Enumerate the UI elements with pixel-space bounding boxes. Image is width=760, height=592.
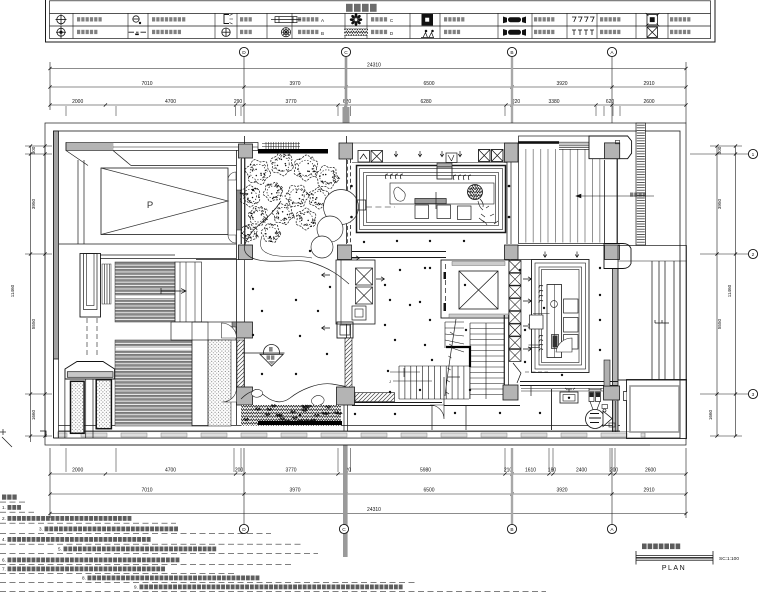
svg-text:3970: 3970 (289, 81, 300, 87)
svg-text:D: D (242, 50, 246, 56)
svg-text:3770: 3770 (285, 468, 296, 474)
svg-text:2910: 2910 (643, 81, 654, 87)
svg-text:6500: 6500 (423, 488, 434, 494)
svg-text:3950: 3950 (31, 198, 36, 209)
svg-text:8.: 8. (82, 576, 86, 581)
svg-text:5980: 5980 (420, 468, 431, 474)
svg-text:1610: 1610 (525, 468, 536, 474)
svg-text:3950: 3950 (717, 198, 722, 209)
svg-text:1660: 1660 (708, 409, 713, 420)
svg-text:200: 200 (235, 468, 244, 474)
svg-text:1: 1 (752, 152, 755, 158)
svg-text:5.: 5. (58, 547, 62, 552)
svg-text:2000: 2000 (72, 468, 83, 474)
svg-text:C: C (344, 50, 348, 56)
svg-text:1660: 1660 (31, 409, 36, 420)
svg-text:B: B (510, 50, 513, 56)
svg-text:3.: 3. (39, 527, 43, 532)
svg-text:C: C (342, 527, 346, 533)
svg-text:6500: 6500 (423, 81, 434, 87)
svg-text:4700: 4700 (165, 468, 176, 474)
svg-text:4700: 4700 (165, 99, 176, 105)
svg-text:7.: 7. (2, 567, 6, 572)
svg-text:24310: 24310 (367, 507, 381, 513)
svg-text:J: J (389, 379, 391, 384)
svg-text:7010: 7010 (141, 81, 152, 87)
svg-text:2000: 2000 (72, 99, 83, 105)
svg-text:3380: 3380 (548, 99, 559, 105)
svg-text:24310: 24310 (367, 63, 381, 69)
svg-text:6280: 6280 (420, 99, 431, 105)
svg-text:1.: 1. (2, 505, 6, 510)
svg-text:11460: 11460 (10, 284, 15, 297)
svg-text:P: P (147, 200, 153, 211)
svg-text:3: 3 (752, 392, 755, 398)
svg-text:3920: 3920 (556, 81, 567, 87)
svg-text:2400: 2400 (576, 468, 587, 474)
svg-text:4.: 4. (2, 537, 6, 542)
svg-text:3770: 3770 (285, 99, 296, 105)
svg-text:D: D (242, 527, 246, 533)
svg-text:B: B (510, 527, 513, 533)
svg-text:B: B (321, 31, 324, 36)
svg-text:2600: 2600 (645, 468, 656, 474)
svg-text:2600: 2600 (643, 99, 654, 105)
svg-text:5550: 5550 (717, 318, 722, 329)
svg-text:9.: 9. (134, 585, 138, 590)
svg-text:5550: 5550 (31, 318, 36, 329)
svg-text:3970: 3970 (289, 488, 300, 494)
svg-text:SC:1:100: SC:1:100 (719, 556, 739, 562)
svg-text:300: 300 (717, 146, 722, 154)
svg-text:2: 2 (752, 252, 755, 258)
svg-text:300: 300 (31, 146, 36, 154)
svg-text:3920: 3920 (556, 488, 567, 494)
svg-text:6.: 6. (2, 558, 6, 563)
svg-text:290: 290 (234, 99, 243, 105)
svg-text:11460: 11460 (727, 284, 732, 297)
svg-text:PLAN: PLAN (662, 565, 686, 572)
svg-text:2910: 2910 (643, 488, 654, 494)
svg-text:2.: 2. (2, 516, 6, 521)
svg-text:7010: 7010 (141, 488, 152, 494)
